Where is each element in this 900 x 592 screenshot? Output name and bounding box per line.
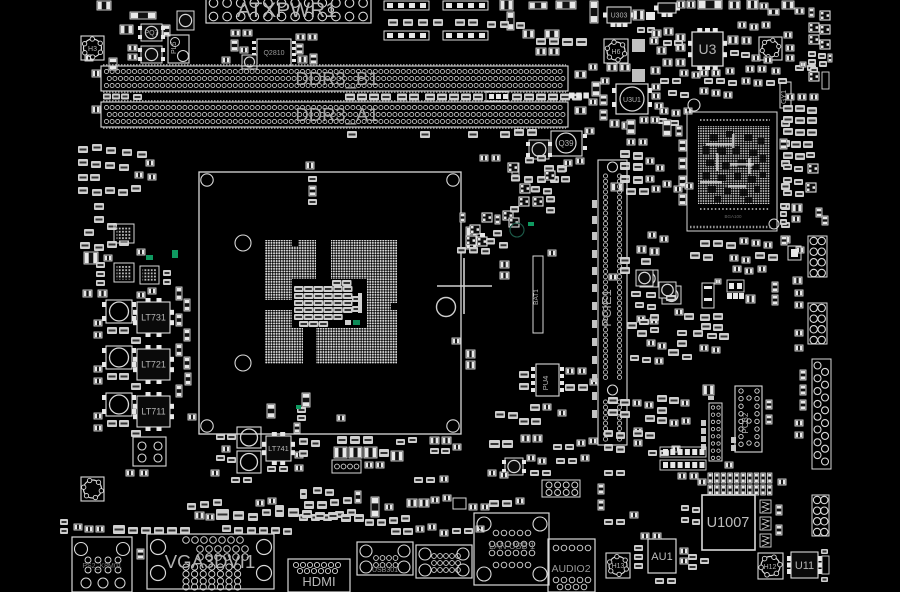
svg-text:PU4: PU4 (541, 376, 550, 391)
svg-text:AUDIO2: AUDIO2 (551, 563, 590, 575)
svg-text:Q2810: Q2810 (263, 50, 284, 57)
svg-text:AU1: AU1 (651, 551, 672, 563)
svg-text:BGA100: BGA100 (724, 214, 742, 219)
svg-text:LT741: LT741 (268, 444, 289, 453)
svg-text:PL5: PL5 (171, 41, 178, 54)
svg-text:PS2_K8M01: PS2_K8M01 (82, 563, 121, 570)
svg-text:U1007: U1007 (707, 515, 750, 531)
svg-text:Q39: Q39 (558, 139, 574, 148)
svg-text:LAN USB 1: LAN USB 1 (489, 541, 535, 551)
svg-text:HDMI: HDMI (302, 574, 335, 589)
svg-text:PCB2: PCB2 (741, 412, 750, 433)
svg-text:H6: H6 (612, 49, 621, 56)
svg-text:USB301: USB301 (372, 567, 398, 574)
svg-text:U303: U303 (611, 13, 628, 20)
svg-text:BAT1: BAT1 (533, 289, 540, 305)
svg-text:U3U1: U3U1 (623, 97, 641, 104)
svg-text:LT721: LT721 (141, 360, 166, 370)
svg-text:DDR3_A1: DDR3_A1 (295, 104, 378, 126)
svg-text:U3: U3 (699, 41, 717, 57)
svg-text:H12: H12 (764, 564, 777, 571)
svg-text:PQ7: PQ7 (144, 30, 158, 37)
svg-text:H13: H13 (612, 563, 625, 570)
svg-text:VGA3DVI1: VGA3DVI1 (165, 551, 256, 572)
svg-text:PCIE1: PCIE1 (599, 289, 614, 327)
svg-text:H3: H3 (88, 46, 97, 53)
svg-text:ATXPWR1: ATXPWR1 (237, 0, 337, 22)
svg-text:LT711: LT711 (141, 407, 165, 417)
svg-text:LT731: LT731 (141, 313, 166, 323)
svg-text:DDR3_B1: DDR3_B1 (295, 68, 378, 90)
svg-text:U11: U11 (795, 560, 814, 572)
